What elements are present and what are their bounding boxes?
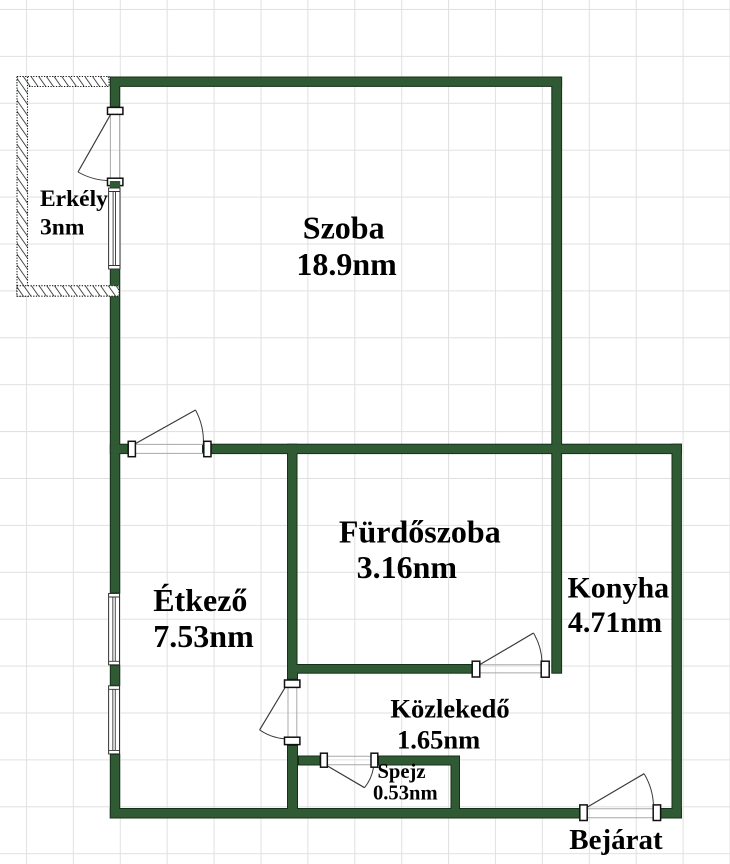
- svg-text:Fürdőszoba: Fürdőszoba: [339, 513, 501, 549]
- svg-text:Erkély: Erkély: [40, 186, 108, 212]
- svg-text:4.71nm: 4.71nm: [568, 606, 662, 639]
- svg-text:1.65nm: 1.65nm: [397, 724, 480, 754]
- svg-text:3nm: 3nm: [40, 214, 85, 240]
- svg-text:Közlekedő: Közlekedő: [390, 694, 509, 724]
- svg-text:Szoba: Szoba: [303, 210, 385, 246]
- svg-text:Bejárat: Bejárat: [569, 824, 663, 856]
- svg-text:7.53nm: 7.53nm: [153, 618, 254, 654]
- svg-text:18.9nm: 18.9nm: [296, 246, 397, 282]
- svg-text:Konyha: Konyha: [567, 572, 669, 605]
- svg-text:Étkező: Étkező: [153, 582, 247, 618]
- svg-text:0.53nm: 0.53nm: [373, 783, 438, 805]
- svg-text:3.16nm: 3.16nm: [357, 549, 458, 585]
- svg-text:Spejz: Spejz: [377, 761, 425, 783]
